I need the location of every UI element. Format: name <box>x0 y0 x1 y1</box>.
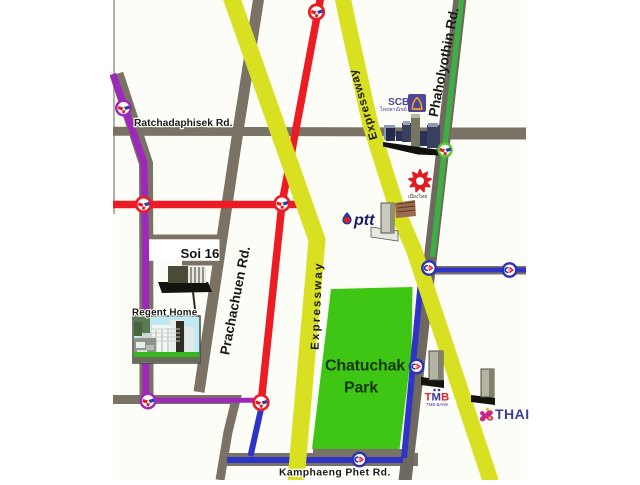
svg-text:Soi 16: Soi 16 <box>181 246 220 261</box>
svg-text:ไทยพาณิชย์: ไทยพาณิชย์ <box>379 105 407 113</box>
svg-text:ptt: ptt <box>353 212 375 229</box>
svg-text:เมืองไทย: เมืองไทย <box>408 193 427 200</box>
svg-text:Park: Park <box>344 380 378 397</box>
svg-text:TMB BANK: TMB BANK <box>426 402 449 407</box>
svg-text:Regent Home: Regent Home <box>132 308 198 319</box>
svg-text:THAI: THAI <box>495 406 530 422</box>
svg-text:Ratchadaphisek Rd.: Ratchadaphisek Rd. <box>134 118 233 129</box>
svg-text:Kamphaeng Phet Rd.: Kamphaeng Phet Rd. <box>279 468 391 479</box>
svg-text:Chatuchak: Chatuchak <box>325 358 405 375</box>
